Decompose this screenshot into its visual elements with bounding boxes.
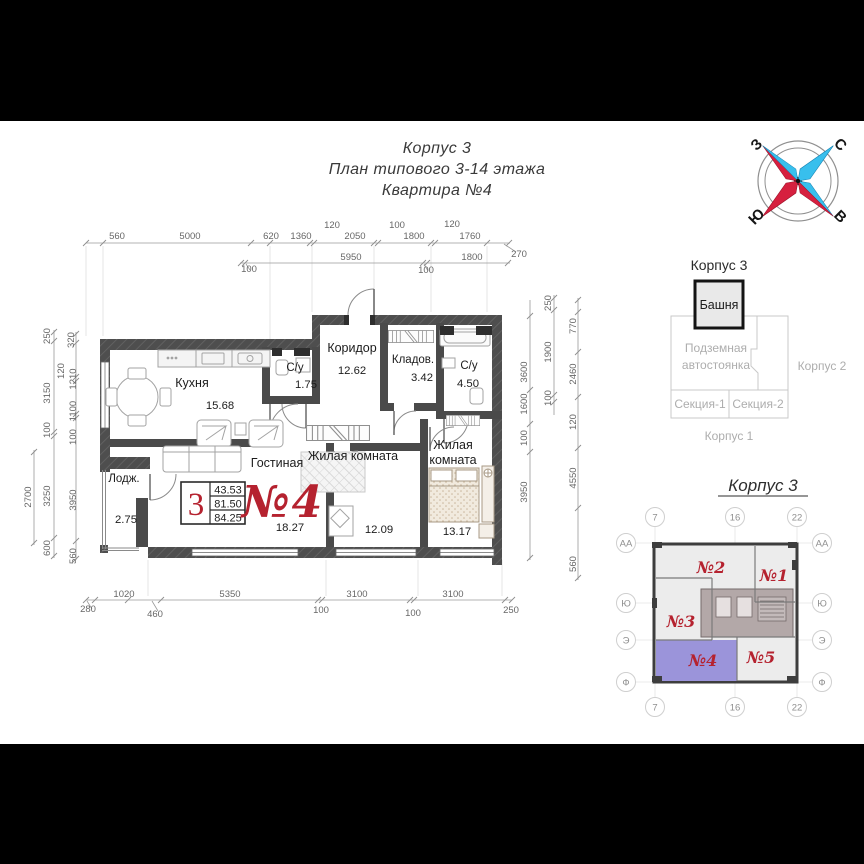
axis-bubble-right-2: Ю: [813, 594, 832, 613]
dimension-label: 320: [66, 332, 77, 348]
dimension-label: 1020: [113, 589, 134, 600]
dimension-label: 4550: [568, 467, 579, 488]
dimension-label: 120: [56, 363, 67, 379]
title-building: Корпус 3: [403, 140, 472, 157]
dimension-label: 2700: [23, 486, 34, 507]
dimension-label: 2460: [568, 363, 579, 384]
wc2-area: 4.50: [457, 378, 479, 390]
dimension-label: 1600: [519, 393, 530, 414]
dimension-label: 100: [241, 264, 257, 275]
axis-bubble-right-1: АА: [813, 534, 832, 553]
dimension-label: 250: [503, 605, 519, 616]
axis-bubble-top-3: 22: [788, 508, 807, 527]
dimension-label: 1360: [290, 231, 311, 242]
axis-bubble-bottom-1: 7: [646, 698, 665, 717]
axis-label: Э: [623, 636, 630, 647]
dimension-label: 600: [42, 540, 53, 556]
dimension-label: 1760: [459, 231, 480, 242]
key-plan-title: Корпус 3: [691, 257, 748, 273]
dimension-label: 770: [568, 318, 579, 334]
living-label: Гостиная: [251, 456, 303, 470]
axis-bubble-left-1: АА: [617, 534, 636, 553]
dimension-label: 2050: [344, 231, 365, 242]
tower-label: Башня: [700, 298, 739, 312]
dimension-label: 100: [313, 605, 329, 616]
dimension-label: 560: [568, 556, 579, 572]
axis-label: Ф: [818, 678, 825, 689]
dimension-label: 100: [68, 429, 79, 445]
dimension-label: 3150: [42, 382, 53, 403]
dimension-label: 280: [80, 604, 96, 615]
plate-apartment-3-label: №3: [666, 612, 696, 631]
kitchen-area: 15.68: [206, 400, 234, 412]
apartment-number-mark: №4: [240, 477, 324, 528]
total-area-value: 84.25: [214, 513, 242, 525]
bedroom2-bed-icon: [429, 468, 479, 522]
dimension-label: 5950: [340, 252, 361, 263]
storage-label: Кладов.: [392, 354, 434, 366]
axis-label: 16: [730, 513, 741, 524]
dimension-label: 1900: [543, 341, 554, 362]
dimension-label: 560: [109, 231, 125, 242]
dimension-label: 120: [568, 414, 579, 430]
axis-bubble-left-3: Э: [617, 631, 636, 650]
parking-label-1: Подземная: [685, 341, 747, 355]
dimension-label: 100: [418, 265, 434, 276]
dimension-label: 3100: [346, 589, 367, 600]
dimension-label: 5000: [179, 231, 200, 242]
axis-label: Ю: [621, 599, 631, 610]
top-letterbox-bar: [0, 0, 864, 121]
axis-bubble-top-1: 7: [646, 508, 665, 527]
bedroom2-label-2: комната: [429, 453, 476, 467]
axis-label: 16: [730, 703, 741, 714]
loggia-label: Лодж.: [108, 473, 139, 485]
axis-bubble-bottom-3: 22: [788, 698, 807, 717]
axis-label: АА: [816, 539, 829, 550]
dimension-label: 120: [324, 220, 340, 231]
axis-bubble-bottom-2: 16: [726, 698, 745, 717]
loggia-area: 2.75: [115, 514, 137, 526]
dimension-label: 3950: [519, 481, 530, 502]
storage-shelf-icon: [388, 330, 433, 342]
title-floor: План типового 3-14 этажа: [329, 161, 546, 178]
section1-label: Секция-1: [674, 397, 726, 411]
wc1-area: 1.75: [295, 379, 317, 391]
axis-bubble-top-2: 16: [726, 508, 745, 527]
bedroom1-area: 12.09: [365, 524, 393, 536]
dimension-label: 1210: [68, 368, 79, 389]
plate-apartment-2-label: №2: [696, 558, 726, 577]
floor-plate-title: Корпус 3: [728, 476, 798, 495]
living-area-value: 43.53: [214, 485, 242, 497]
screenshot-page: Корпус 3 План типового 3-14 этажа Кварти…: [0, 0, 864, 864]
axis-label: Ю: [817, 599, 827, 610]
axis-bubble-left-2: Ю: [617, 594, 636, 613]
axis-label: Э: [819, 636, 826, 647]
axis-label: 22: [792, 513, 803, 524]
rooms-count-value: 3: [188, 487, 205, 523]
dimension-label: 100: [42, 422, 53, 438]
bedroom1-wardrobe-icon: [307, 426, 370, 441]
dimension-label: 100: [519, 430, 530, 446]
dimension-label: 460: [147, 609, 163, 620]
dimension-label: 3600: [519, 361, 530, 382]
dimension-label: 100: [543, 390, 554, 406]
axis-bubble-right-3: Э: [813, 631, 832, 650]
plate-apartment-4-label: №4: [688, 651, 718, 670]
desk-chair-icon: [329, 506, 353, 536]
sofa-icon: [163, 446, 241, 472]
bedroom1-label: Жилая комната: [308, 449, 398, 463]
dimension-label: 620: [263, 231, 279, 242]
axis-bubble-left-4: Ф: [617, 673, 636, 692]
drawing-canvas: Корпус 3 План типового 3-14 этажа Кварти…: [0, 0, 864, 864]
dimension-label: 270: [511, 249, 527, 260]
apartment-info-table: 3 43.53 81.50 84.25: [181, 482, 245, 525]
title-apartment: Квартира №4: [382, 182, 492, 199]
dimension-label: 5350: [219, 589, 240, 600]
dimension-label: 1800: [403, 231, 424, 242]
dimension-label: 100: [389, 220, 405, 231]
bottom-letterbox-bar: [0, 744, 864, 864]
bedroom2-label-1: Жилая: [433, 438, 473, 452]
wc2-label: С/у: [460, 360, 478, 372]
wc1-label: С/у: [286, 362, 304, 374]
dimension-label: 3100: [442, 589, 463, 600]
dimension-label: 3950: [68, 489, 79, 510]
axis-label: 7: [652, 703, 657, 714]
axis-bubble-right-4: Ф: [813, 673, 832, 692]
axis-label: 7: [652, 513, 657, 524]
corridor-area: 12.62: [338, 365, 366, 377]
dimension-label: 250: [543, 295, 554, 311]
axis-label: Ф: [622, 678, 629, 689]
corridor-label: Коридор: [327, 341, 376, 355]
axis-label: АА: [620, 539, 633, 550]
storage-area: 3.42: [411, 372, 433, 384]
dimension-label: 250: [42, 328, 53, 344]
parking-label-2: автостоянка: [682, 358, 750, 372]
dimension-label: 120: [444, 219, 460, 230]
area-value: 81.50: [214, 499, 242, 511]
dimension-label: 100: [405, 608, 421, 619]
bedroom2-area: 13.17: [443, 526, 471, 538]
dimension-label: 560: [68, 548, 79, 564]
plate-apartment-1-label: №1: [759, 566, 789, 585]
dimension-label: 3250: [42, 485, 53, 506]
axis-label: 22: [792, 703, 803, 714]
plate-apartment-5-label: №5: [746, 648, 776, 667]
bedroom2-wardrobe-icon: [446, 415, 479, 425]
korpus2-label: Корпус 2: [798, 359, 847, 373]
korpus1-label: Корпус 1: [705, 429, 754, 443]
dimension-label: 1800: [461, 252, 482, 263]
section2-label: Секция-2: [732, 397, 784, 411]
kitchen-label: Кухня: [175, 376, 208, 390]
dimension-label: 1100: [68, 401, 79, 421]
kitchen-counter-icon: [158, 350, 270, 367]
